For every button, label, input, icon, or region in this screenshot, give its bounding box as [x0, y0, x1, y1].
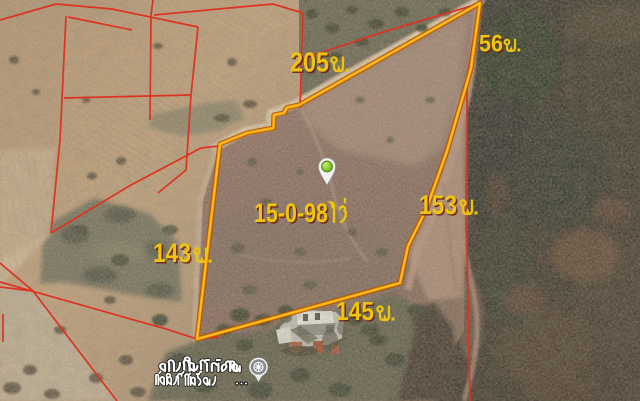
- svg-text:56: 56: [479, 31, 503, 58]
- svg-text:145: 145: [336, 296, 374, 326]
- svg-text:205: 205: [290, 47, 329, 78]
- svg-text:15-0-98: 15-0-98: [254, 198, 328, 228]
- svg-text:143: 143: [153, 238, 191, 268]
- svg-text:153: 153: [419, 190, 457, 220]
